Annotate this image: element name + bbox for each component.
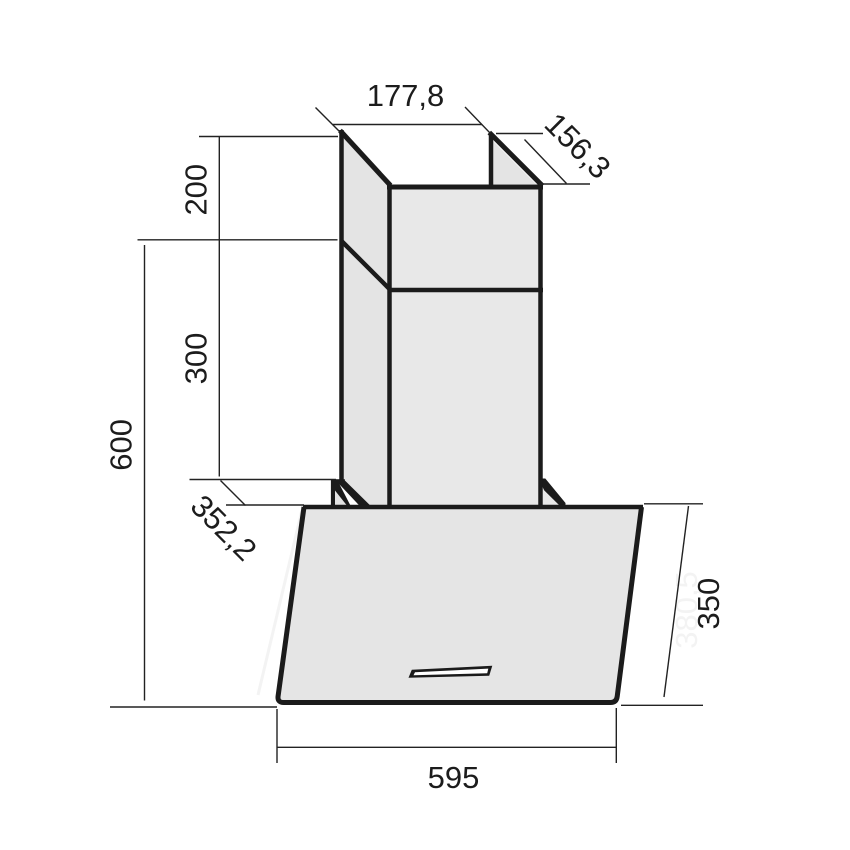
svg-text:300: 300 xyxy=(178,333,213,385)
svg-text:350: 350 xyxy=(691,578,726,630)
svg-text:595: 595 xyxy=(428,760,480,795)
svg-text:200: 200 xyxy=(178,164,213,216)
svg-text:177,8: 177,8 xyxy=(367,78,445,113)
svg-text:600: 600 xyxy=(104,419,139,471)
